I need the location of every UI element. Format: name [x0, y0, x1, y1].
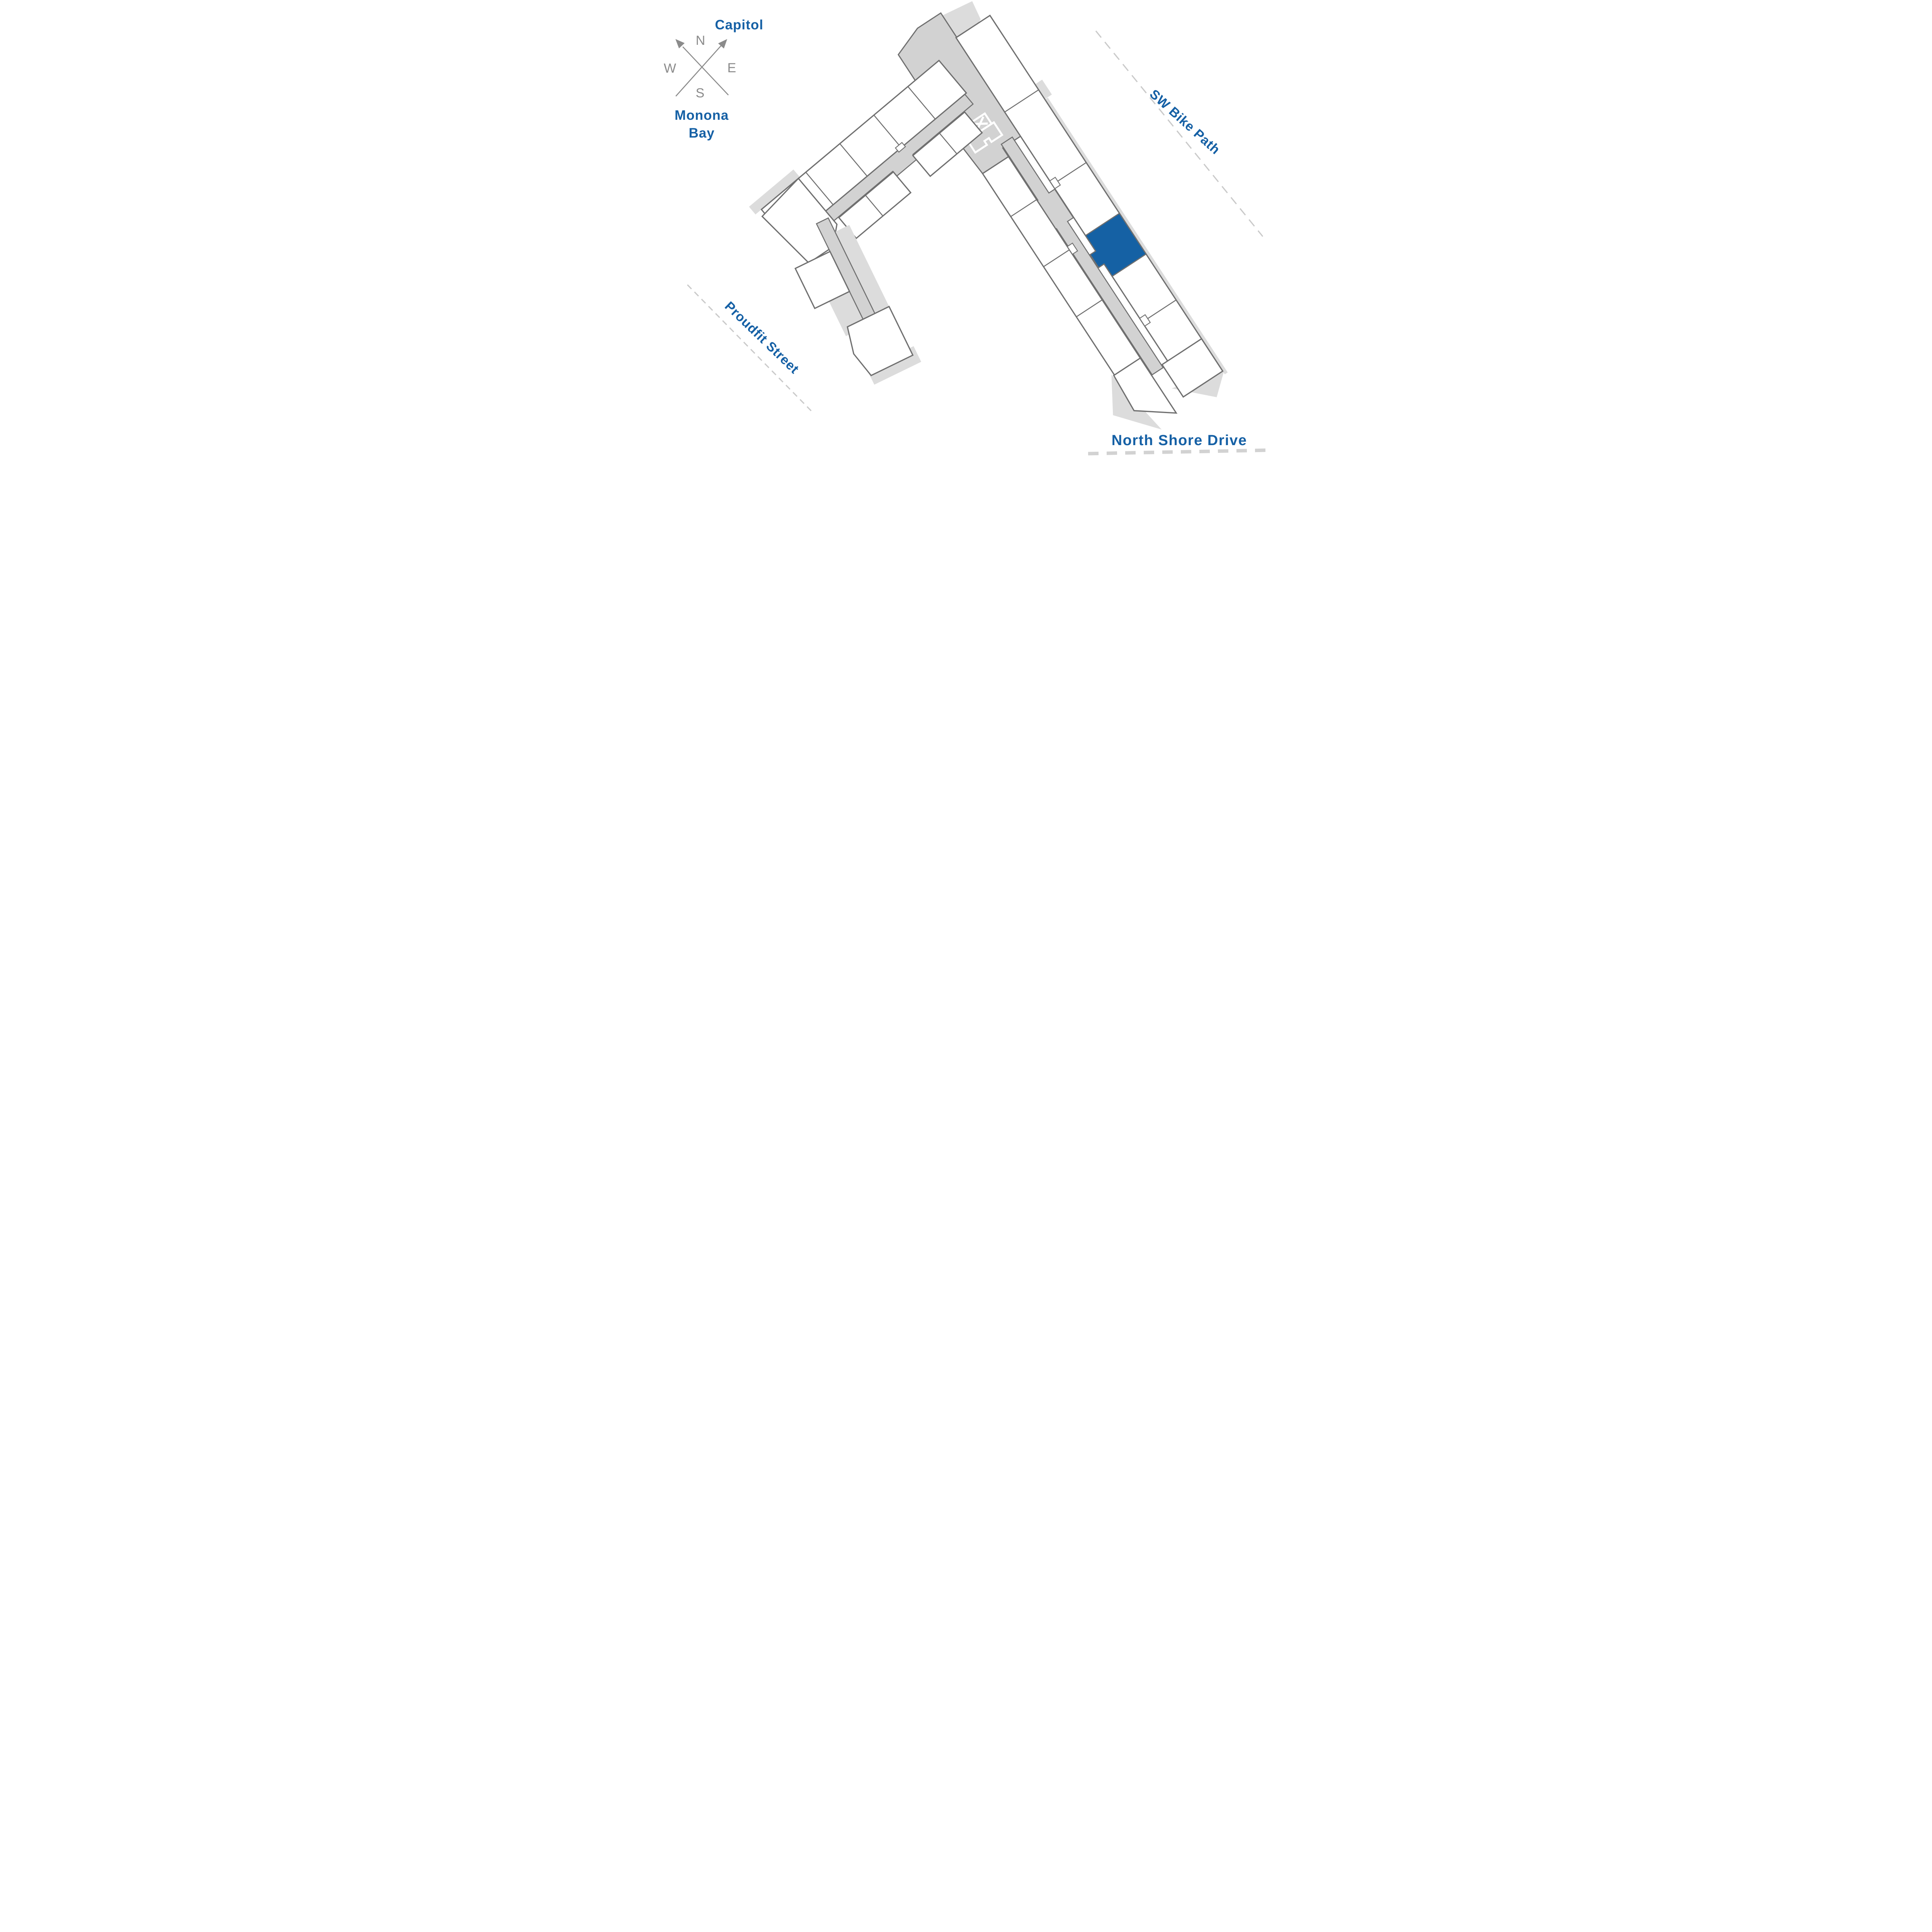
label-capitol: Capitol [715, 17, 764, 32]
compass-icon: N W E S [664, 33, 736, 100]
site-plan-map: N W E S Capitol Monona Bay SW Bike Path … [663, 0, 1269, 457]
proudfit-street-line [687, 285, 814, 413]
compass-n: N [696, 33, 705, 48]
label-sw-bike-path: SW Bike Path [1147, 87, 1223, 157]
label-north-shore-drive: North Shore Drive [1112, 432, 1247, 449]
site-plan-page: N W E S Capitol Monona Bay SW Bike Path … [663, 0, 1269, 457]
label-proudfit-street: Proudfit Street [722, 299, 802, 377]
compass-s: S [696, 86, 704, 100]
compass-e: E [727, 61, 736, 75]
label-monona-line1: Monona [675, 108, 729, 123]
north-shore-drive-line [1088, 450, 1269, 454]
building-floor-plan [749, 0, 1240, 450]
west-wing [749, 53, 992, 278]
label-monona-line2: Bay [689, 126, 714, 141]
compass-w: W [664, 61, 677, 76]
sw-bike-path-line [1096, 31, 1263, 236]
